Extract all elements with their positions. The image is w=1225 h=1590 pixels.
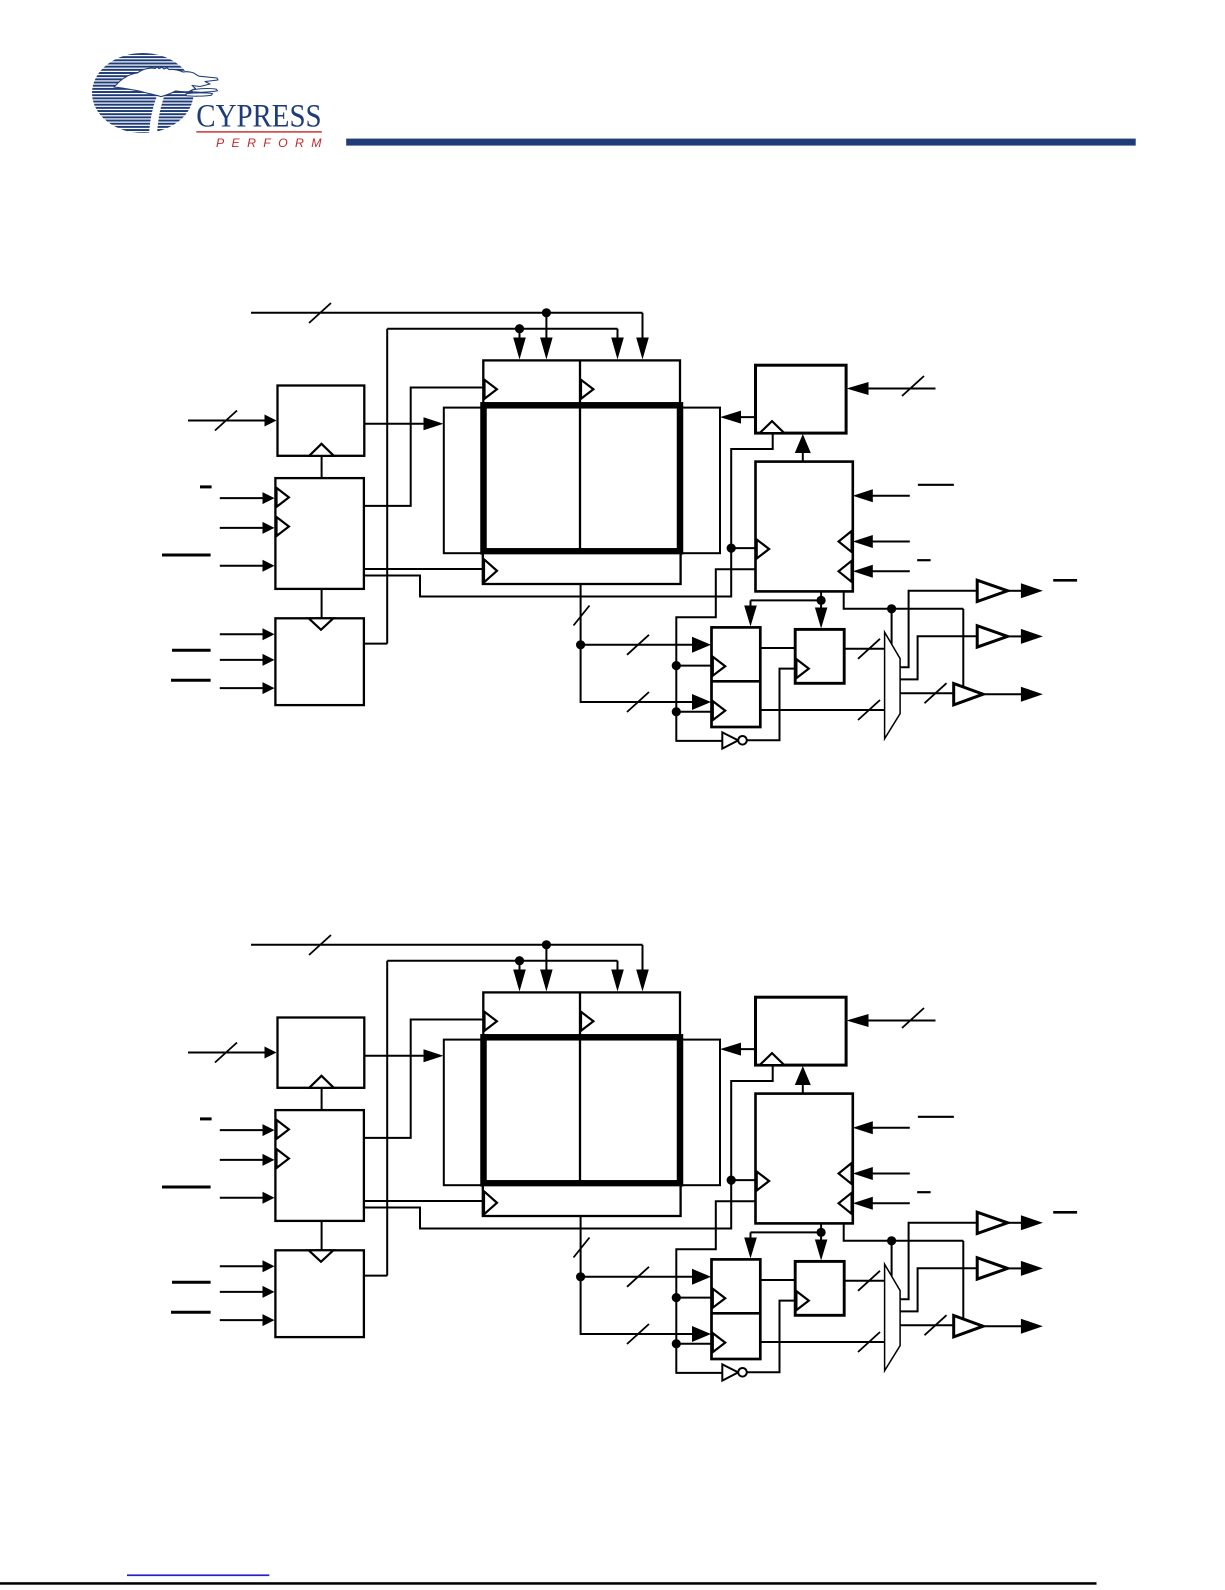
- svg-text:CYPRESS: CYPRESS: [196, 99, 321, 135]
